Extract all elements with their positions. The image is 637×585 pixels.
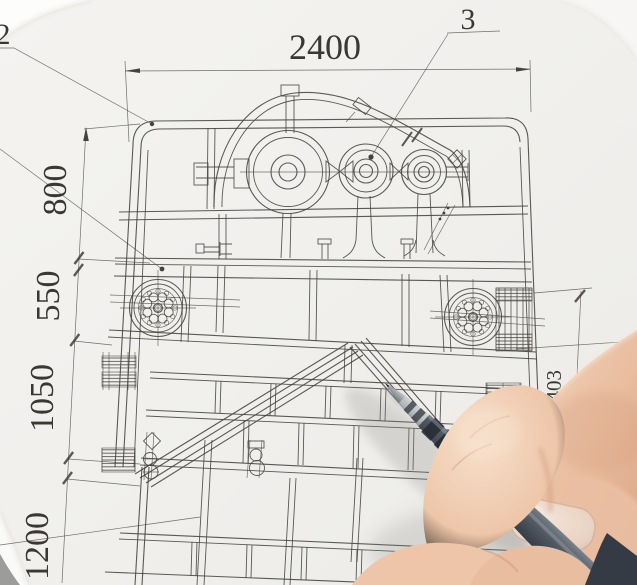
callout-2-label: 2 (0, 18, 11, 51)
dim-left-1050: 1050 (24, 364, 61, 432)
dim-left-550: 550 (30, 271, 67, 322)
dim-left-800: 800 (37, 165, 74, 216)
scene-svg: 2400 3 2 800 550 1050 1200 1403 (0, 0, 637, 585)
dim-left-1200: 1200 (19, 512, 56, 580)
dim-top-label: 2400 (289, 27, 361, 67)
callout-3-label: 3 (461, 3, 476, 36)
photo-of-technical-drawing: 2400 3 2 800 550 1050 1200 1403 (0, 0, 637, 585)
